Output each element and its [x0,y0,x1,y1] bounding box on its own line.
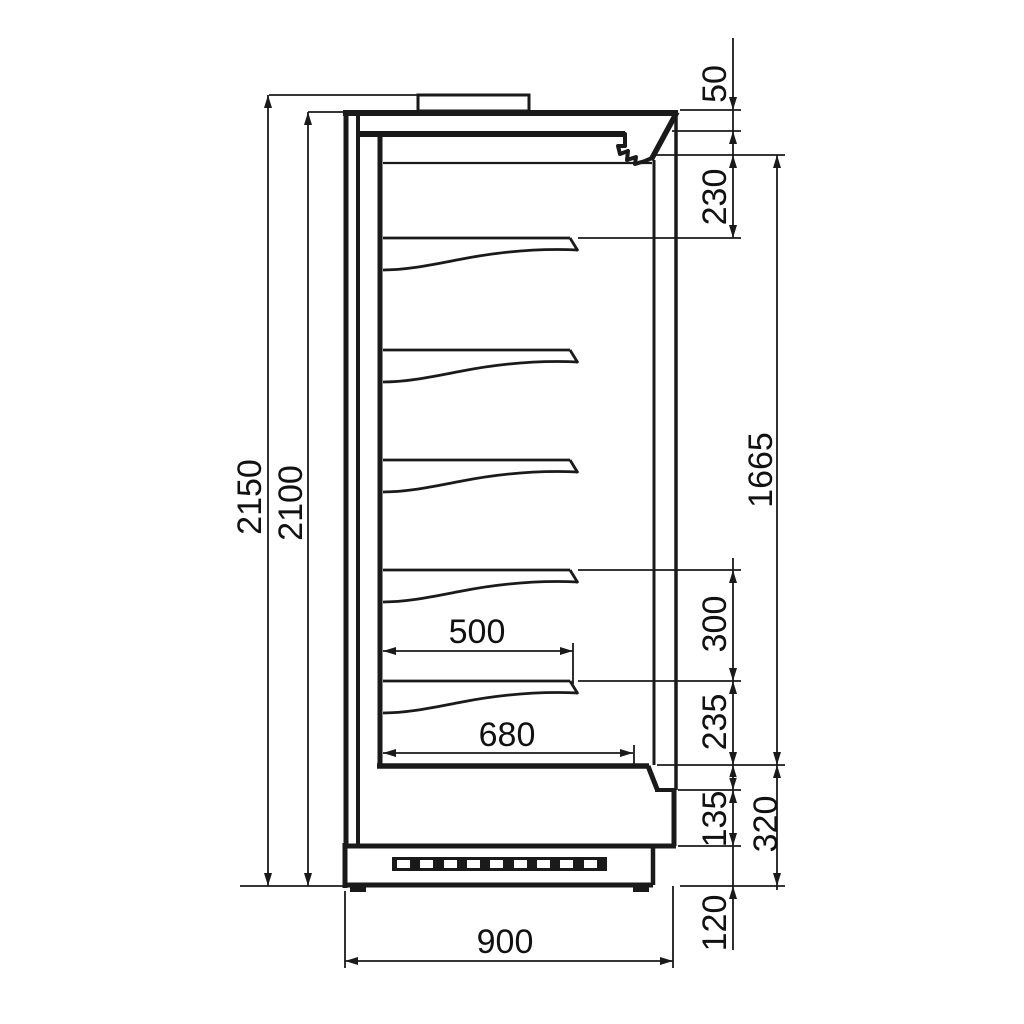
fan-housing-box [418,95,529,111]
dim-label-body-height: 2100 [272,465,310,541]
dim-label-lower-deck-depth: 680 [479,716,536,754]
dim-label-top-clearance: 230 [696,169,734,226]
dim-label-foot-clearance: 120 [696,895,734,952]
foot-left [350,885,366,892]
ventilation-grille [392,857,607,871]
dim-label-display-opening: 1665 [742,432,780,508]
air-curtain-hook-profile [618,134,652,164]
shelf-4 [383,570,578,602]
shelf-1 [383,238,578,270]
dim-label-shelf-spacing: 300 [696,596,734,653]
technical-drawing-page: 2150 2100 50 230 1665 300 235 135 320 12… [0,0,1024,1024]
canopy-front-slope [651,112,677,160]
shelf-5 [383,681,578,713]
dim-label-overall-height: 2150 [231,459,269,535]
dim-label-overall-depth: 900 [477,923,534,961]
foot-right [633,885,649,892]
dim-label-base-section-height: 320 [747,796,785,853]
dimension-labels: 2150 2100 50 230 1665 300 235 135 320 12… [231,65,785,961]
dim-label-bottom-shelf-clearance: 235 [696,694,734,751]
dim-label-shelf-depth: 500 [449,613,506,651]
floor-front-bevel [648,766,657,789]
shelf-3 [383,460,578,492]
dim-label-canopy-height: 50 [696,65,734,103]
shelf-2 [383,350,578,382]
cabinet-section-drawing: 2150 2100 50 230 1665 300 235 135 320 12… [0,0,1024,1024]
dim-label-kick-height: 135 [696,791,734,848]
